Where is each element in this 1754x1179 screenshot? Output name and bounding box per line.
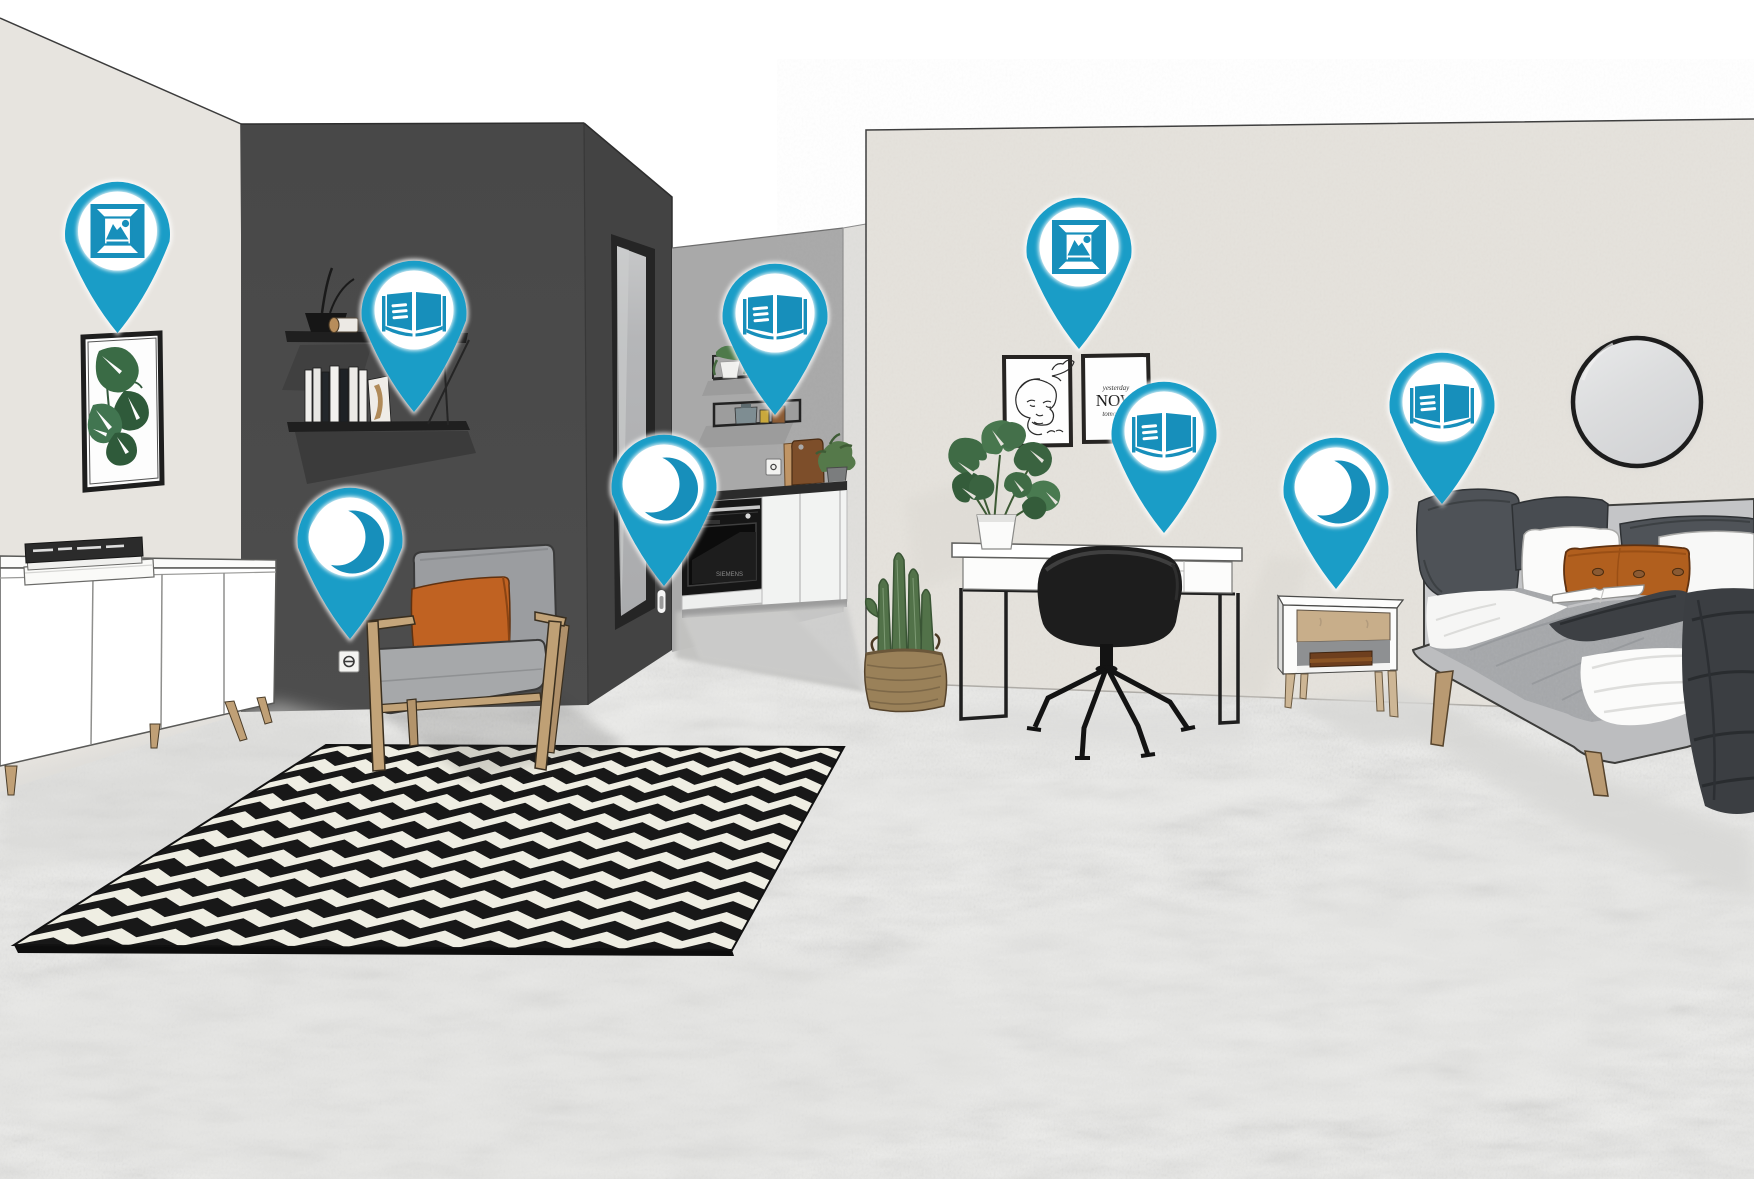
svg-text:SIEMENS: SIEMENS	[716, 572, 743, 578]
